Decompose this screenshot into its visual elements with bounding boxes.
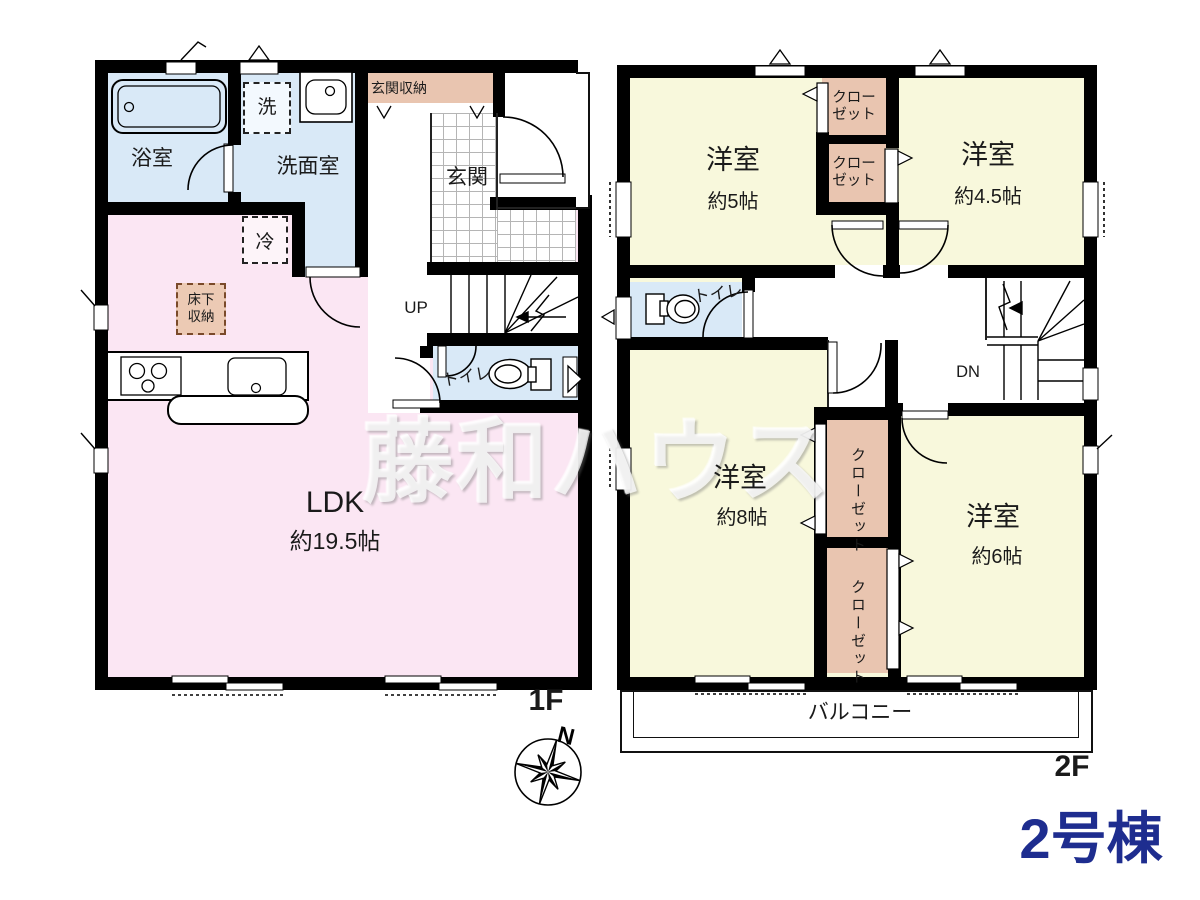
stairs-2f <box>987 281 1084 400</box>
toilet-icon-1f <box>489 359 551 390</box>
watermark: 藤和ハウス <box>362 388 832 521</box>
storage-door-marks <box>377 106 484 118</box>
room8-size: 約8帖 <box>702 506 782 530</box>
underfloor-storage-box: 床下収納 <box>176 283 226 335</box>
bath-label: 浴室 <box>110 146 194 172</box>
underfloor-storage-label: 床下収納 <box>186 292 216 326</box>
washer-label: 洗 <box>257 97 276 119</box>
compass-north-label: N <box>555 721 577 750</box>
balcony-label: バルコニー <box>790 700 930 726</box>
entrance-storage-label: 玄関収納 <box>371 76 441 100</box>
room6-name: 洋室 <box>957 503 1029 533</box>
floor2-label: 2F <box>1044 750 1100 784</box>
room5-name: 洋室 <box>697 146 769 176</box>
room45-size: 約4.5帖 <box>941 185 1035 209</box>
floor-plan-canvas: N 藤和ハウス 洗 冷 床下収納 浴室 洗面室 玄関収納 玄関 LDK 約19.… <box>0 0 1200 900</box>
room6-size: 約6帖 <box>954 545 1040 569</box>
closet3-label: クローゼット <box>827 420 888 537</box>
fridge-label: 冷 <box>255 227 274 254</box>
closet4-label: クローゼット <box>827 548 888 673</box>
stairs-1f <box>451 275 578 333</box>
building-title: 2号棟 <box>985 806 1197 872</box>
kitchen-counter-icon <box>107 352 308 424</box>
floor1-label: 1F <box>518 684 574 718</box>
washbasin-icon <box>300 72 352 122</box>
washroom-label: 洗面室 <box>250 154 366 180</box>
entrance-label: 玄関 <box>436 165 498 191</box>
room5-size: 約5帖 <box>693 190 773 214</box>
ldk-size-label: 約19.5帖 <box>265 528 405 554</box>
ldk-label: LDK <box>275 486 395 520</box>
stairs-up-label: UP <box>396 298 436 318</box>
room45-name: 洋室 <box>952 141 1024 171</box>
compass-icon: N <box>515 721 581 805</box>
closet2-label: クローゼット <box>822 150 886 196</box>
fridge-box: 冷 <box>242 216 288 264</box>
stairs-dn-label: DN <box>950 362 986 382</box>
room8-name: 洋室 <box>704 464 776 494</box>
bathtub-icon <box>112 80 226 133</box>
closet1-label: クローゼット <box>822 84 886 130</box>
washer-box: 洗 <box>243 82 291 134</box>
